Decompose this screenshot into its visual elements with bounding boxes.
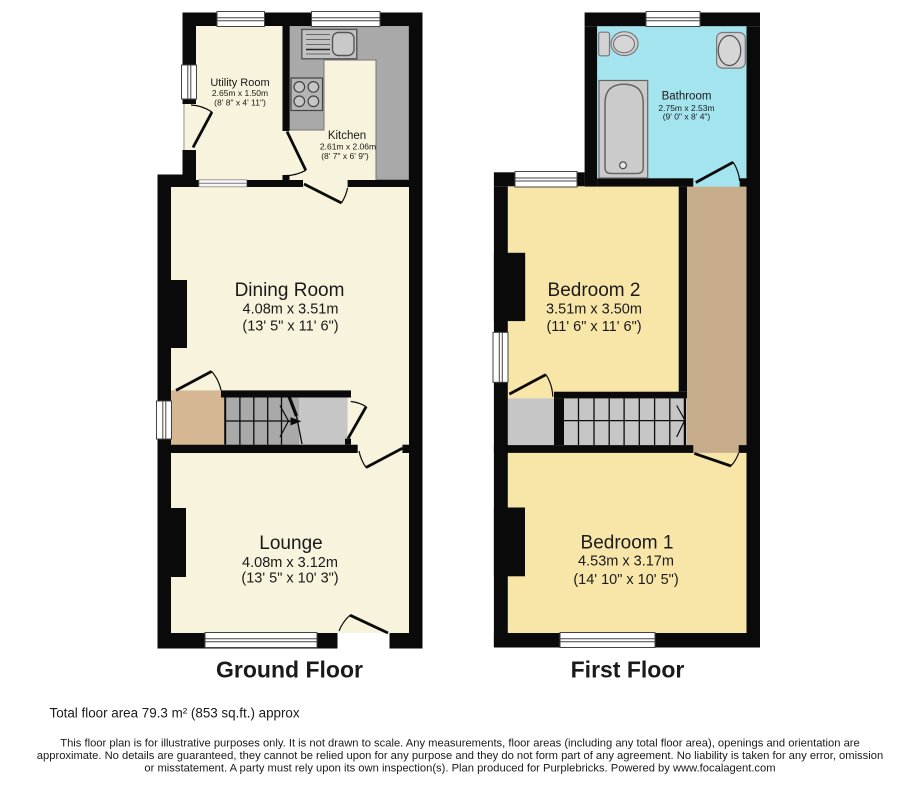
svg-text:Total floor area 79.3 m² (853: Total floor area 79.3 m² (853 sq.ft.) ap… xyxy=(50,706,300,721)
svg-text:(11' 6" x 11' 6"): (11' 6" x 11' 6") xyxy=(546,319,641,335)
svg-text:(13' 5" x 11' 6"): (13' 5" x 11' 6") xyxy=(242,319,338,335)
svg-text:(9' 0" x 8' 4"): (9' 0" x 8' 4") xyxy=(663,112,711,122)
svg-text:or misstatement. A party must: or misstatement. A party must rely upon … xyxy=(144,762,775,774)
svg-text:Ground Floor: Ground Floor xyxy=(216,657,363,683)
svg-text:Utility Room: Utility Room xyxy=(210,77,269,89)
svg-text:First Floor: First Floor xyxy=(571,657,685,683)
svg-text:(13' 5" x 10' 3"): (13' 5" x 10' 3") xyxy=(241,571,338,587)
svg-text:2.65m x 1.50m: 2.65m x 1.50m xyxy=(212,88,268,98)
svg-text:Bedroom 2: Bedroom 2 xyxy=(548,280,641,301)
svg-text:(8' 8" x 4' 11"): (8' 8" x 4' 11") xyxy=(214,98,266,108)
svg-text:(8' 7" x 6' 9"): (8' 7" x 6' 9") xyxy=(321,151,369,161)
svg-text:4.53m x 3.17m: 4.53m x 3.17m xyxy=(578,554,674,570)
svg-text:Bedroom 1: Bedroom 1 xyxy=(581,533,674,554)
svg-text:(14' 10" x 10' 5"): (14' 10" x 10' 5") xyxy=(573,572,678,588)
svg-text:Lounge: Lounge xyxy=(259,533,322,554)
svg-text:Dining Room: Dining Room xyxy=(235,280,345,301)
svg-text:2.61m x 2.06m: 2.61m x 2.06m xyxy=(320,142,376,152)
svg-text:Bathroom: Bathroom xyxy=(662,91,712,103)
svg-text:4.08m x 3.12m: 4.08m x 3.12m xyxy=(242,555,338,571)
svg-text:4.08m x 3.51m: 4.08m x 3.51m xyxy=(243,302,339,318)
svg-text:3.51m x 3.50m: 3.51m x 3.50m xyxy=(546,302,642,318)
svg-text:Kitchen: Kitchen xyxy=(328,130,366,142)
svg-text:This floor plan is for illustr: This floor plan is for illustrative purp… xyxy=(60,738,860,750)
svg-text:approximate. No details are gu: approximate. No details are guaranteed, … xyxy=(37,750,883,762)
